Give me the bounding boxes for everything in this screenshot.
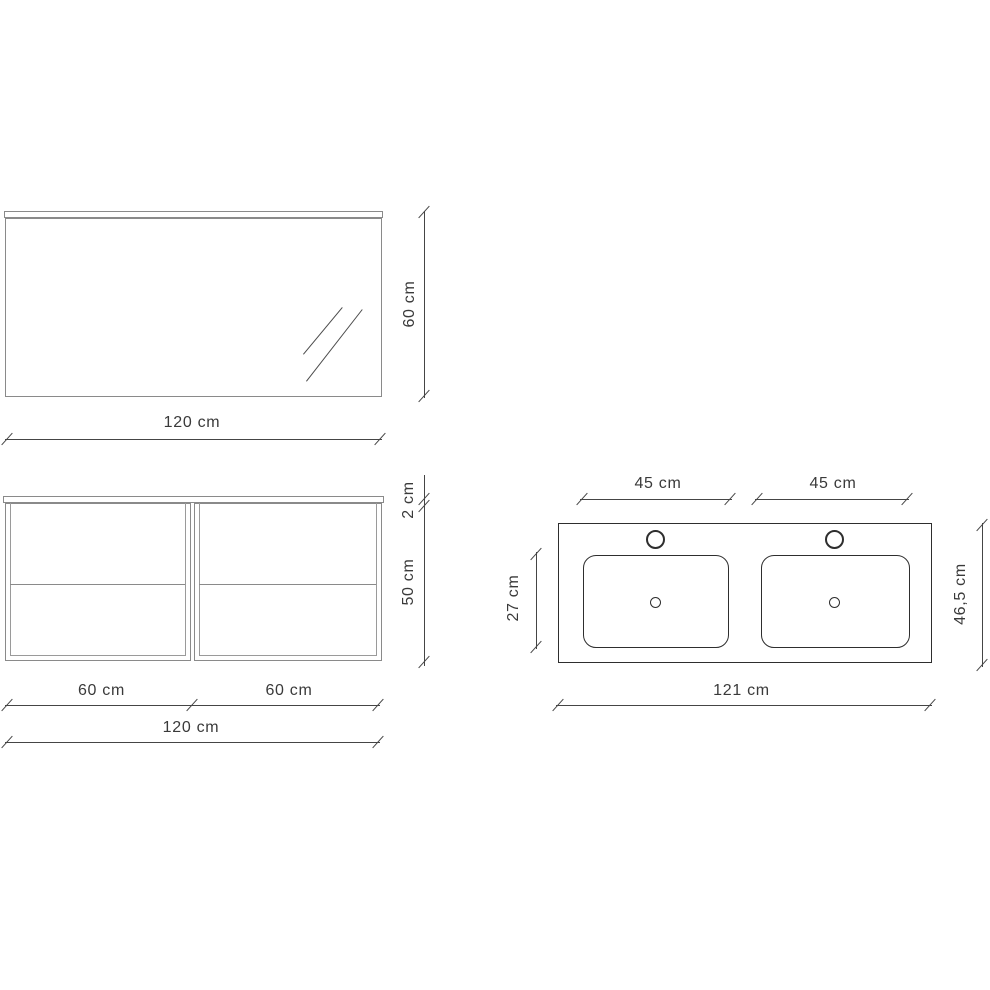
left-basin-width-label: 45 cm: [634, 476, 681, 492]
cabinet-right-module-width-label: 60 cm: [265, 683, 312, 699]
cabinet-right-module-inner-frame: [199, 503, 377, 656]
cabinet-countertop: [3, 496, 384, 503]
countertop-width-dimension-line: [556, 705, 932, 706]
cabinet-left-drawer-divider: [10, 584, 185, 585]
cabinet-left-module-inner-frame: [10, 503, 186, 656]
cabinet-total-width-dimension-line: [5, 742, 380, 743]
mirror-height-label: 60 cm: [402, 280, 418, 327]
right-basin-width-label: 45 cm: [809, 476, 856, 492]
basin-depth-dimension-line: [536, 552, 537, 649]
right-drain-hole: [829, 597, 840, 608]
mirror-top-rail: [4, 211, 383, 218]
cabinet-top-thickness-label: 2 cm: [401, 481, 417, 518]
technical-drawing-canvas: 60 cm 120 cm 2 cm 50 cm 60 cm 60 cm: [0, 0, 990, 990]
mirror-width-label: 120 cm: [164, 415, 221, 431]
mirror-glass: [5, 218, 382, 397]
countertop-depth-label: 46,5 cm: [953, 563, 969, 625]
countertop-depth-dimension-line: [982, 523, 983, 667]
cabinet-right-drawer-divider: [199, 584, 376, 585]
right-faucet-hole: [825, 530, 844, 549]
countertop-width-label: 121 cm: [713, 683, 770, 699]
cabinet-total-width-label: 120 cm: [163, 720, 220, 736]
left-faucet-hole: [646, 530, 665, 549]
cabinet-left-module-width-label: 60 cm: [78, 683, 125, 699]
mirror-width-dimension-line: [5, 439, 382, 440]
left-drain-hole: [650, 597, 661, 608]
cabinet-body-height-label: 50 cm: [401, 558, 417, 605]
right-basin-width-dimension-line: [755, 499, 909, 500]
basin-depth-label: 27 cm: [506, 574, 522, 621]
left-basin-width-dimension-line: [580, 499, 732, 500]
mirror-height-dimension-line: [424, 211, 425, 398]
